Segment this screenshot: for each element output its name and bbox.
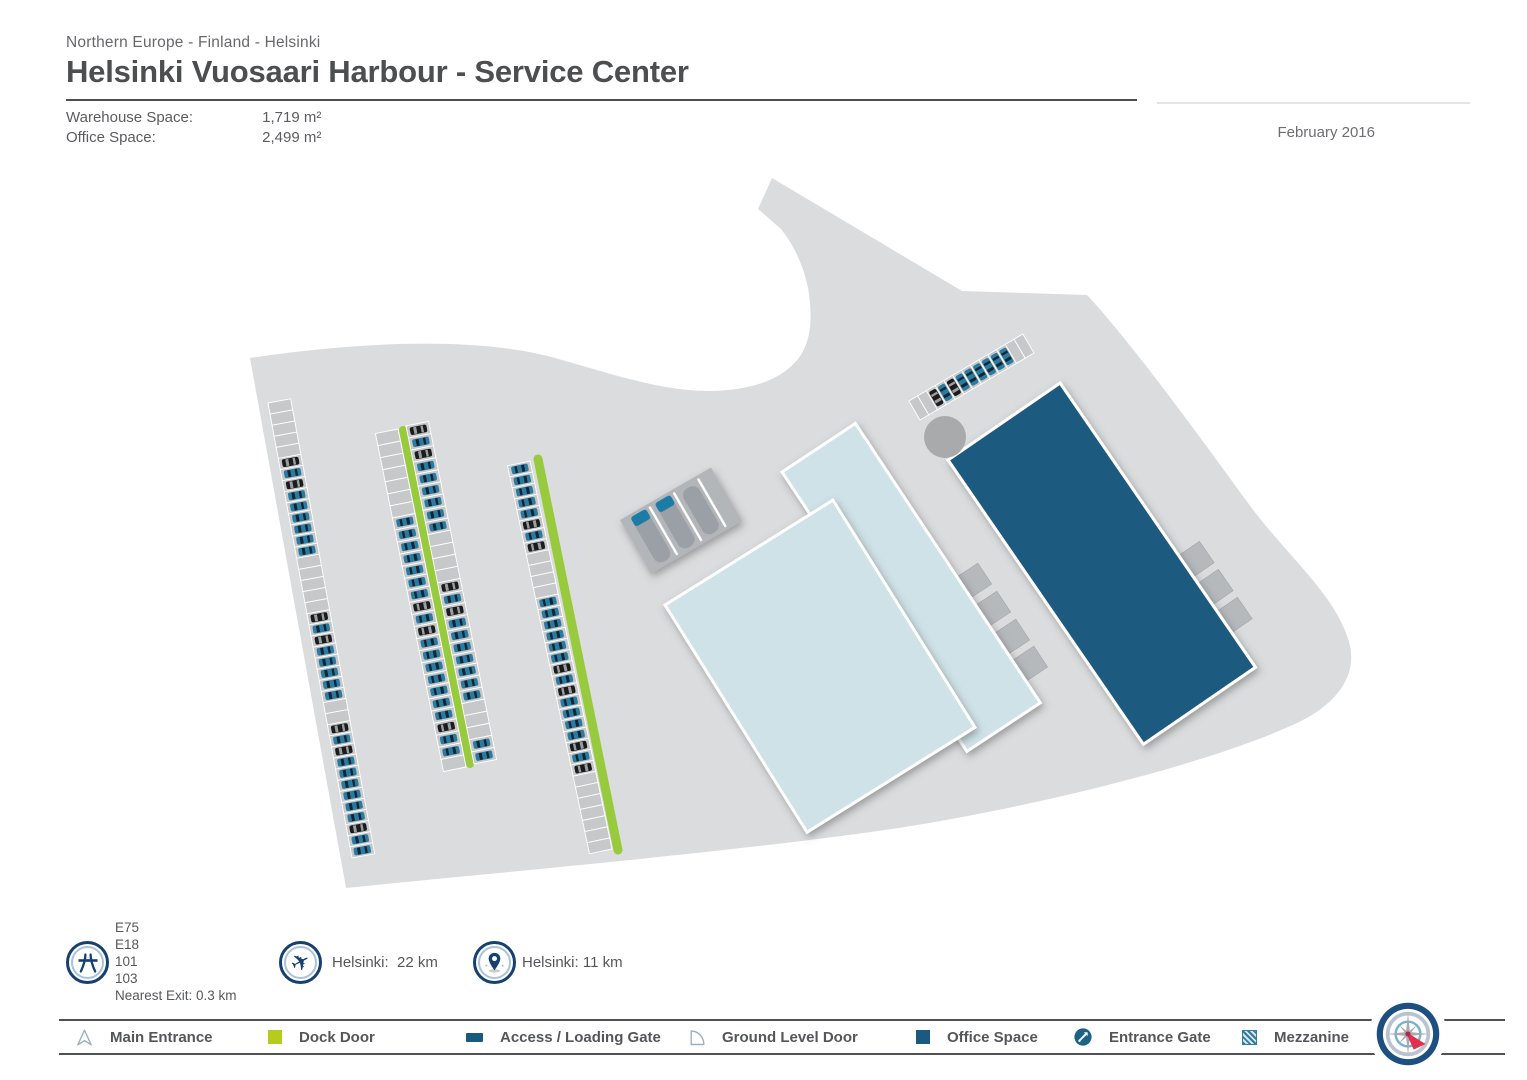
legend-item-main-entrance: Main Entrance — [76, 1021, 213, 1053]
nearest-exit: Nearest Exit: 0.3 km — [115, 987, 237, 1004]
legend-label: Entrance Gate — [1109, 1029, 1211, 1046]
road-number: 103 — [115, 970, 237, 987]
motorway-roads: E75 E18 101 103 Nearest Exit: 0.3 km — [115, 919, 237, 1004]
legend-item-mezzanine: Mezzanine — [1242, 1021, 1349, 1053]
city-icon — [473, 941, 516, 984]
map-pin-glyph — [482, 950, 507, 975]
legend-item-ground-level-door: Ground Level Door — [688, 1021, 858, 1053]
compass — [1369, 995, 1447, 1073]
legend-label: Access / Loading Gate — [500, 1029, 661, 1046]
legend-label: Dock Door — [299, 1029, 375, 1046]
access-loading-gate-icon — [466, 1033, 483, 1042]
site-plan-page: Northern Europe - Finland - Helsinki Hel… — [0, 0, 1527, 1080]
airport-icon: ✈ — [279, 941, 322, 984]
city-icon-inner — [478, 946, 511, 979]
motorway-icon — [66, 941, 109, 984]
airport-icon-inner: ✈ — [284, 946, 317, 979]
mezzanine-icon — [1242, 1030, 1257, 1045]
motorway-icon-inner — [71, 946, 104, 979]
legend-item-dock-door: Dock Door — [268, 1021, 375, 1053]
legend-item-office-space: Office Space — [916, 1021, 1038, 1053]
motorway-glyph — [76, 951, 100, 975]
legend-bar: Main Entrance Dock Door Access / Loading… — [59, 1019, 1505, 1055]
road-number: E75 — [115, 919, 237, 936]
legend-label: Main Entrance — [110, 1029, 213, 1046]
city-distance: Helsinki: 11 km — [522, 954, 623, 971]
dock-door-icon — [268, 1030, 282, 1044]
ground-level-door-icon — [688, 1029, 705, 1046]
road-number: 101 — [115, 953, 237, 970]
road-number: E18 — [115, 936, 237, 953]
site-map — [0, 0, 1527, 1080]
legend-label: Ground Level Door — [722, 1029, 858, 1046]
airplane-glyph: ✈ — [287, 948, 315, 977]
roundabout — [924, 416, 966, 458]
compass-rose-icon — [1372, 998, 1444, 1070]
legend-item-access-loading-gate: Access / Loading Gate — [466, 1021, 661, 1053]
legend-label: Office Space — [947, 1029, 1038, 1046]
legend-item-entrance-gate: Entrance Gate — [1074, 1021, 1211, 1053]
airport-distance: Helsinki: 22 km — [332, 954, 438, 971]
office-space-icon — [916, 1030, 930, 1044]
entrance-gate-icon — [1074, 1028, 1092, 1046]
legend-label: Mezzanine — [1274, 1029, 1349, 1046]
main-entrance-icon — [76, 1029, 93, 1046]
